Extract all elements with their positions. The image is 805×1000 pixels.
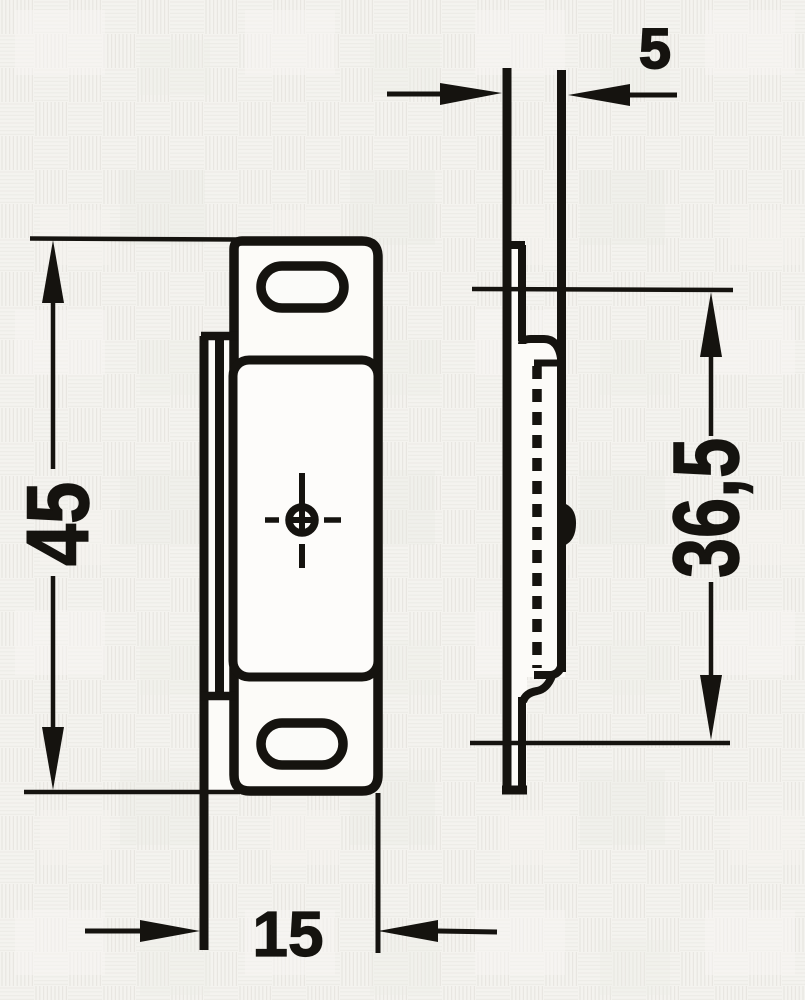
svg-text:45: 45: [10, 482, 108, 566]
svg-text:15: 15: [252, 898, 323, 970]
svg-text:36,5: 36,5: [654, 438, 758, 578]
svg-text:5: 5: [639, 17, 671, 81]
